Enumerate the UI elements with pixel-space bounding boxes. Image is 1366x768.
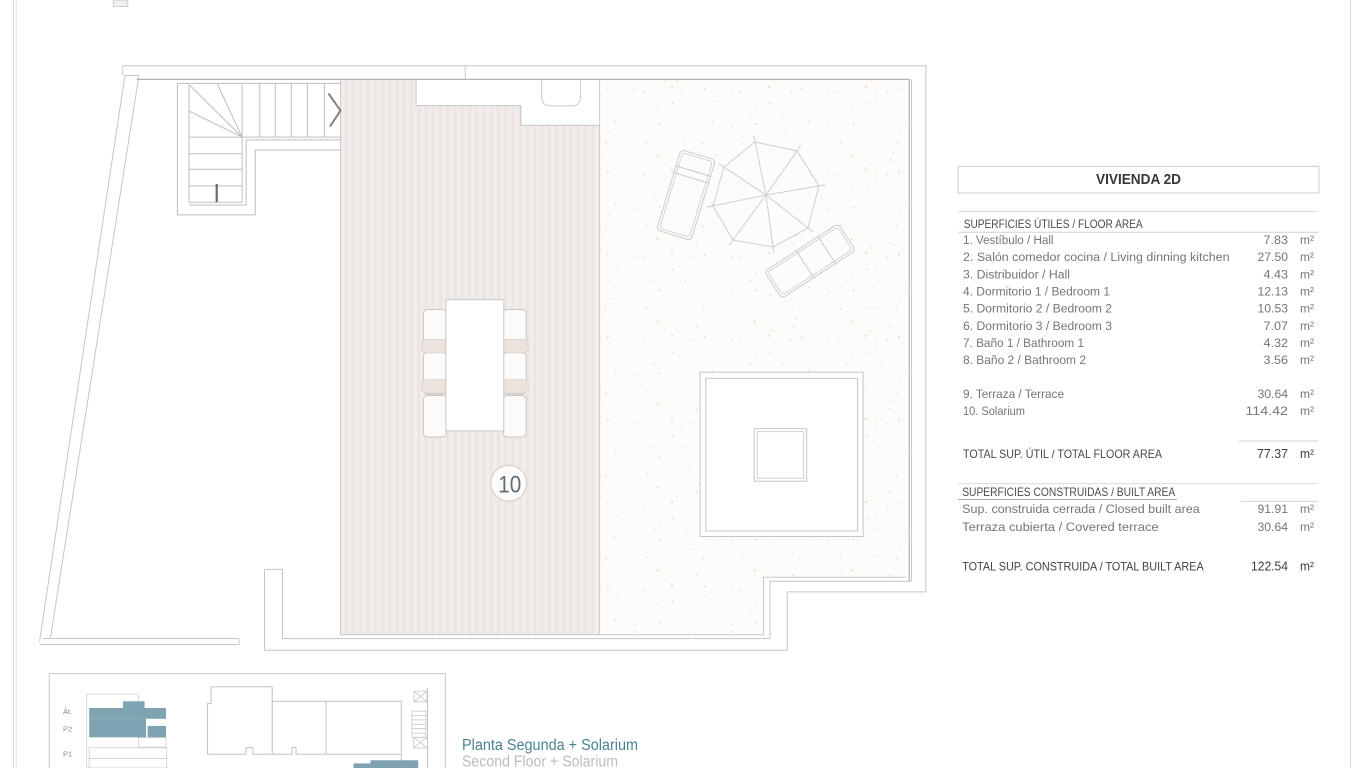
svg-text:Planta Segunda + Solarium: Planta Segunda + Solarium: [462, 737, 638, 754]
svg-text:m²: m²: [1300, 233, 1314, 247]
svg-text:TOTAL SUP. ÚTIL / TOTAL FLOOR: TOTAL SUP. ÚTIL / TOTAL FLOOR AREA: [963, 446, 1162, 461]
svg-text:m²: m²: [1300, 559, 1315, 574]
svg-text:m²: m²: [1300, 267, 1314, 281]
svg-text:Át.: Át.: [63, 707, 72, 716]
svg-text:SUPERFICIES CONSTRUIDAS / BUIL: SUPERFICIES CONSTRUIDAS / BUILT AREA: [962, 485, 1175, 499]
svg-text:m²: m²: [1300, 336, 1314, 350]
svg-text:9. Terraza / Terrace: 9. Terraza / Terrace: [963, 387, 1064, 401]
svg-text:10: 10: [498, 472, 521, 499]
svg-text:Terraza cubierta / Covered ter: Terraza cubierta / Covered terrace: [962, 520, 1159, 534]
svg-text:4.43: 4.43: [1264, 267, 1289, 281]
svg-text:8. Baño 2 / Bathroom 2: 8. Baño 2 / Bathroom 2: [963, 353, 1086, 367]
svg-text:TOTAL SUP. CONSTRUIDA / TOTAL: TOTAL SUP. CONSTRUIDA / TOTAL BUILT AREA: [962, 560, 1203, 574]
svg-text:91.91: 91.91: [1258, 502, 1289, 516]
svg-text:m²: m²: [1300, 250, 1314, 264]
svg-text:Second Floor + Solarium: Second Floor + Solarium: [462, 754, 618, 768]
svg-text:27.50: 27.50: [1258, 250, 1289, 264]
svg-text:1. Vestíbulo / Hall: 1. Vestíbulo / Hall: [963, 233, 1054, 247]
svg-text:114.42: 114.42: [1245, 404, 1288, 418]
svg-text:77.37: 77.37: [1257, 446, 1288, 461]
svg-text:SUPERFICIES ÚTILES / FLOOR ARE: SUPERFICIES ÚTILES / FLOOR AREA: [964, 216, 1143, 231]
svg-text:Sup. construida cerrada / Clos: Sup. construida cerrada / Closed built a…: [962, 502, 1200, 516]
svg-text:P2: P2: [63, 725, 72, 734]
svg-text:7. Baño 1 / Bathroom 1: 7. Baño 1 / Bathroom 1: [963, 336, 1084, 350]
svg-text:2. Salón comedor cocina / Livi: 2. Salón comedor cocina / Living dinning…: [963, 250, 1230, 264]
svg-text:P1: P1: [63, 750, 72, 759]
svg-text:3.56: 3.56: [1264, 353, 1289, 367]
svg-text:3. Distribuidor / Hall: 3. Distribuidor / Hall: [963, 267, 1070, 281]
svg-text:30.64: 30.64: [1258, 387, 1289, 401]
svg-text:m²: m²: [1300, 387, 1314, 401]
svg-text:7.83: 7.83: [1264, 233, 1289, 247]
svg-text:7.07: 7.07: [1264, 319, 1289, 333]
svg-text:122.54: 122.54: [1251, 559, 1288, 574]
svg-text:m²: m²: [1300, 285, 1314, 299]
svg-text:10. Solarium: 10. Solarium: [963, 404, 1025, 418]
svg-text:m²: m²: [1300, 302, 1314, 316]
svg-text:4.32: 4.32: [1264, 336, 1289, 350]
svg-text:VIVIENDA 2D: VIVIENDA 2D: [1096, 172, 1181, 188]
svg-text:m²: m²: [1300, 319, 1314, 333]
svg-text:m²: m²: [1300, 404, 1314, 418]
svg-text:m²: m²: [1300, 502, 1314, 516]
svg-text:m²: m²: [1300, 353, 1314, 367]
svg-text:30.64: 30.64: [1258, 520, 1289, 534]
svg-text:m²: m²: [1300, 520, 1314, 534]
svg-text:5. Dormitorio 2 / Bedroom 2: 5. Dormitorio 2 / Bedroom 2: [963, 302, 1112, 316]
svg-text:m²: m²: [1300, 446, 1315, 461]
svg-text:4. Dormitorio 1 / Bedroom 1: 4. Dormitorio 1 / Bedroom 1: [963, 285, 1110, 299]
svg-text:12.13: 12.13: [1258, 285, 1289, 299]
svg-text:10.53: 10.53: [1258, 302, 1289, 316]
svg-text:6. Dormitorio 3 / Bedroom 3: 6. Dormitorio 3 / Bedroom 3: [963, 319, 1112, 333]
